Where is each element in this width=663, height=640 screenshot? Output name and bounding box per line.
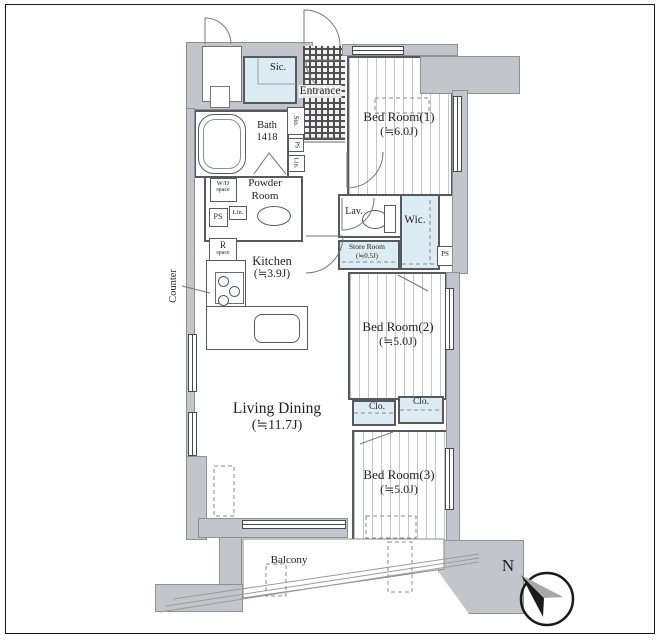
shoes-in-closet-label: Sic.: [270, 62, 286, 74]
living-dining-label: Living Dining (≒11.7J): [233, 400, 321, 434]
closet-right-label: Clo.: [413, 397, 429, 408]
storage-label: Sto.: [292, 115, 300, 126]
bedroom1-name: Bed Room(1): [363, 110, 434, 125]
powder-room-line2: Room: [248, 190, 282, 203]
washer-dryer-label: W/D space: [216, 180, 229, 194]
lavatory-label: Lav.: [345, 206, 362, 218]
bedroom2-name: Bed Room(2): [362, 320, 433, 335]
bath-label: Bath 1418: [257, 120, 278, 144]
walk-in-closet-label: Wic.: [404, 214, 426, 227]
balcony-label: Balcony: [271, 554, 308, 567]
store-room-label: Store Room (≒0.5J): [349, 243, 385, 260]
powder-room-line1: Powder: [248, 177, 282, 190]
bedroom2-label: Bed Room(2) (≒5.0J): [362, 320, 433, 349]
bedroom2-size: (≒5.0J): [362, 335, 433, 349]
linen-powder-label: Lin.: [233, 209, 244, 216]
store-room-name: Store Room: [349, 243, 385, 252]
bedroom3-name: Bed Room(3): [363, 468, 434, 483]
pipe-space-hall-label: PS: [293, 142, 300, 149]
bath-size: 1418: [257, 132, 278, 144]
bedroom1-label: Bed Room(1) (≒6.0J): [363, 110, 434, 139]
pipe-space-wic-label: PS: [441, 250, 449, 258]
compass-north-label: N: [502, 556, 514, 576]
bedroom3-size: (≒5.0J): [363, 483, 434, 497]
powder-room-label: Powder Room: [248, 177, 282, 202]
refrigerator-label: R space: [216, 240, 229, 257]
counter-label: Counter: [168, 269, 180, 303]
compass: [521, 573, 573, 625]
counter-leader-line: [182, 286, 210, 293]
refrigerator-line1: R: [216, 240, 229, 250]
washer-dryer-line2: space: [216, 187, 229, 194]
kitchen-name: Kitchen: [252, 254, 292, 268]
linen-hall-label: Lin.: [292, 158, 299, 169]
store-room-size: (≒0.5J): [349, 252, 385, 260]
washer-dryer-line1: W/D: [216, 180, 229, 187]
kitchen-label: Kitchen (≒3.9J): [252, 254, 292, 282]
kitchen-size: (≒3.9J): [252, 268, 292, 281]
entrance-step-lines: [303, 138, 345, 142]
closet-left-label: Clo.: [369, 402, 385, 413]
bedroom3-label: Bed Room(3) (≒5.0J): [363, 468, 434, 497]
living-dining-size: (≒11.7J): [233, 418, 321, 434]
pipe-space-powder-label: PS: [214, 212, 223, 221]
bath-name: Bath: [257, 120, 278, 132]
door-arcs: [205, 10, 428, 444]
bedroom1-size: (≒6.0J): [363, 125, 434, 139]
living-dining-name: Living Dining: [233, 400, 321, 418]
floor-plan: Bed Room(1) (≒6.0J) Bed Room(2) (≒5.0J) …: [0, 0, 663, 640]
refrigerator-line2: space: [216, 250, 229, 257]
entrance-label: Entrance: [299, 85, 342, 98]
